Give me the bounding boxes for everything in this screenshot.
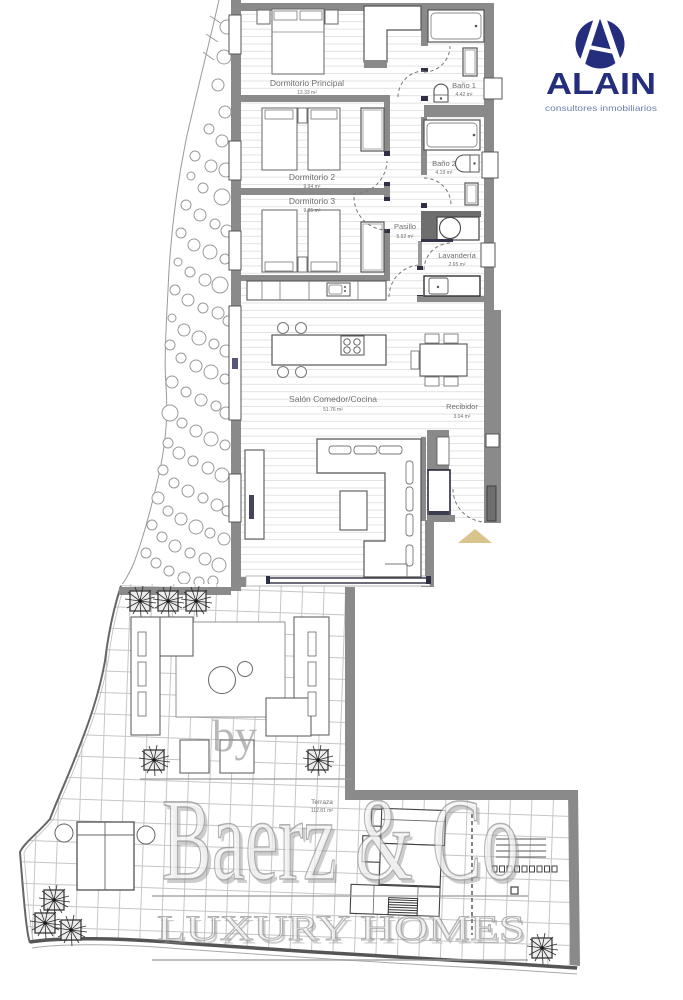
svg-text:9.94 m²: 9.94 m²	[304, 184, 321, 190]
svg-text:ALAIN: ALAIN	[546, 66, 656, 101]
svg-text:Pasillo: Pasillo	[394, 222, 416, 231]
svg-text:4.42 m²: 4.42 m²	[456, 92, 473, 98]
svg-text:consultores inmobiliarios: consultores inmobiliarios	[545, 103, 657, 113]
svg-text:LUXURY HOMES: LUXURY HOMES	[157, 908, 525, 948]
svg-text:Baerz & Co: Baerz & Co	[162, 774, 519, 905]
svg-text:9.85 m²: 9.85 m²	[304, 208, 321, 214]
svg-text:Lavandería: Lavandería	[438, 251, 476, 260]
svg-text:13.33 m²: 13.33 m²	[297, 90, 317, 96]
svg-text:Dormitorio Principal: Dormitorio Principal	[270, 78, 344, 88]
svg-text:Dormitorio 2: Dormitorio 2	[289, 172, 336, 182]
svg-text:4.19 m²: 4.19 m²	[436, 170, 453, 176]
svg-text:Baño 1: Baño 1	[452, 81, 476, 90]
svg-text:Recibidor: Recibidor	[446, 402, 478, 411]
svg-text:51.76 m²: 51.76 m²	[323, 407, 343, 413]
svg-text:5.92 m²: 5.92 m²	[397, 234, 414, 240]
svg-text:3.04 m²: 3.04 m²	[454, 414, 471, 420]
svg-text:Salón Comedor/Cocina: Salón Comedor/Cocina	[289, 394, 377, 404]
svg-text:Baño 2: Baño 2	[432, 159, 456, 168]
svg-text:Dormitorio 3: Dormitorio 3	[289, 196, 336, 206]
svg-text:by: by	[212, 711, 258, 761]
svg-text:2.65 m²: 2.65 m²	[449, 262, 466, 268]
